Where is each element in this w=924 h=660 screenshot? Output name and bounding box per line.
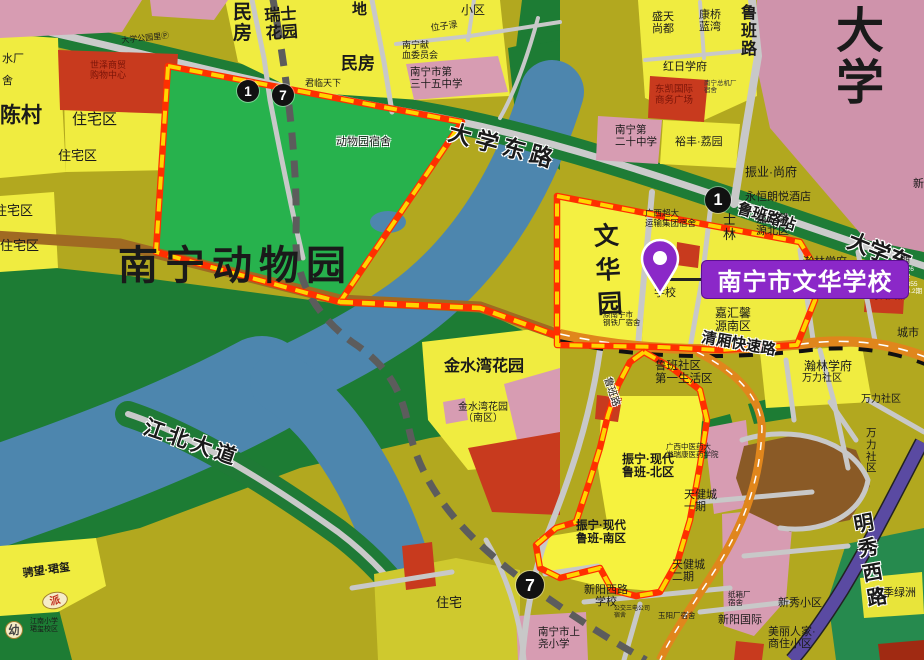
route-marker-7: 7 <box>516 571 544 599</box>
route-marker-7: 7 <box>272 84 294 106</box>
selected-place-callout[interactable]: 南宁市文华学校 <box>701 260 909 299</box>
map-canvas[interactable]: 民 房瑞士 花园地小区民房位子渌南宁献 血委员会南宁市第 三十五中学君临天下大学… <box>0 0 924 660</box>
route-marker-1: 1 <box>705 187 731 213</box>
location-pin-icon[interactable] <box>638 238 682 298</box>
route-marker-1: 1 <box>237 80 259 102</box>
basemap-svg <box>0 0 924 660</box>
poi-badge-幼: 幼 <box>5 621 23 639</box>
